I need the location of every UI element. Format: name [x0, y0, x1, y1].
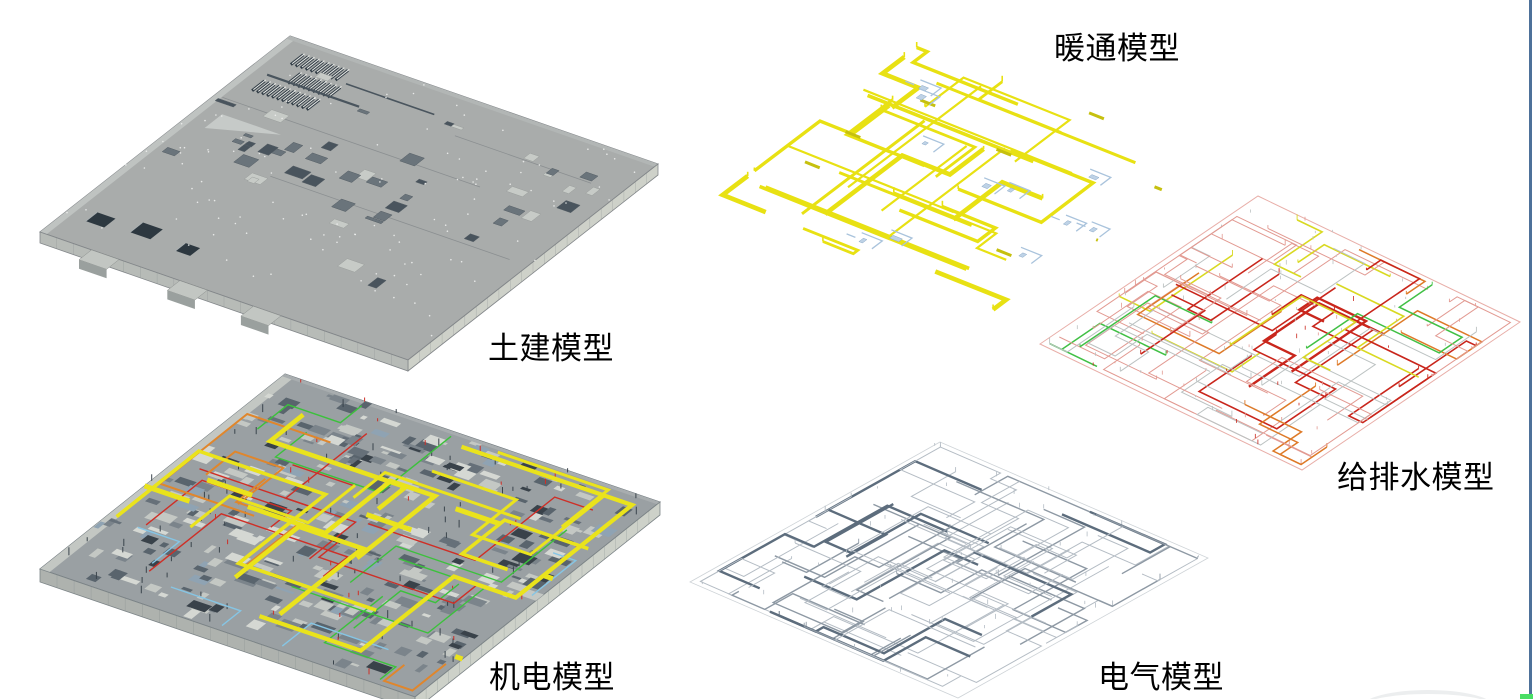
bim-models-collage: 土建模型 暖通模型 给排水模型 机电模型 电气模型	[0, 0, 1533, 699]
civil-model-render	[40, 36, 658, 371]
mep-model-render	[40, 374, 660, 699]
hvac-model-render	[723, 42, 1162, 310]
corner-green-mark	[1520, 694, 1533, 699]
caption-electrical-model: 电气模型	[1098, 659, 1224, 696]
models-canvas	[0, 0, 1533, 699]
slide-right-border	[1529, 0, 1532, 699]
caption-civil-model: 土建模型	[488, 330, 614, 367]
plumbing-model-render	[1040, 196, 1520, 470]
caption-hvac-model: 暖通模型	[1054, 30, 1180, 67]
caption-plumbing-model: 给排水模型	[1337, 459, 1495, 496]
caption-mep-model: 机电模型	[489, 659, 615, 696]
